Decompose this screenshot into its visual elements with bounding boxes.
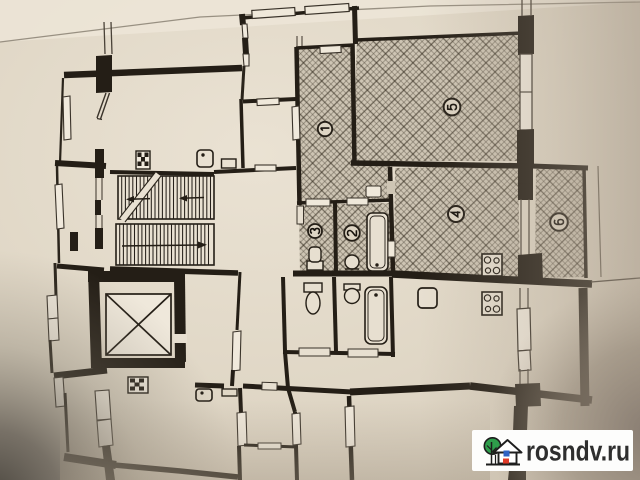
svg-text:rosndv.ru: rosndv.ru (526, 436, 630, 467)
